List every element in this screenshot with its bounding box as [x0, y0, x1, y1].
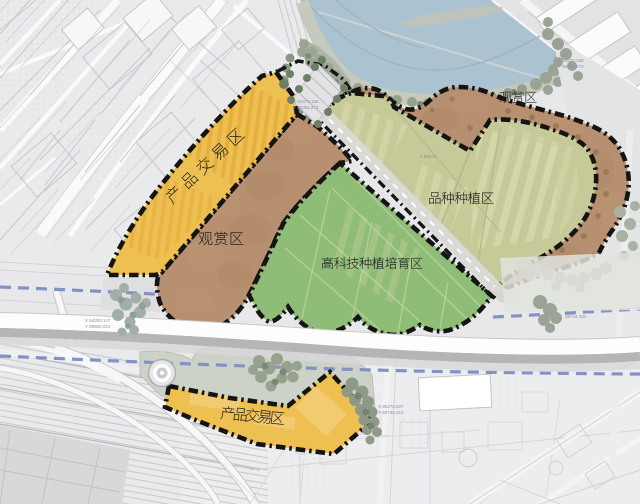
svg-text:X 54300.147: X 54300.147: [85, 318, 111, 323]
svg-text:4 84372: 4 84372: [420, 154, 437, 159]
svg-text:X 54370.188: X 54370.188: [558, 58, 584, 63]
svg-text:Y 38738.419: Y 38738.419: [378, 410, 404, 415]
svg-text:X 98272.027: X 98272.027: [378, 404, 404, 409]
svg-text:Y 90362.273: Y 90362.273: [558, 64, 584, 69]
svg-text:Y 89850.022: Y 89850.022: [85, 324, 111, 329]
svg-text:Y 90002.273: Y 90002.273: [293, 105, 319, 110]
svg-text:36744.331: 36744.331: [565, 314, 587, 319]
svg-text:X 54370.138: X 54370.138: [293, 99, 319, 104]
